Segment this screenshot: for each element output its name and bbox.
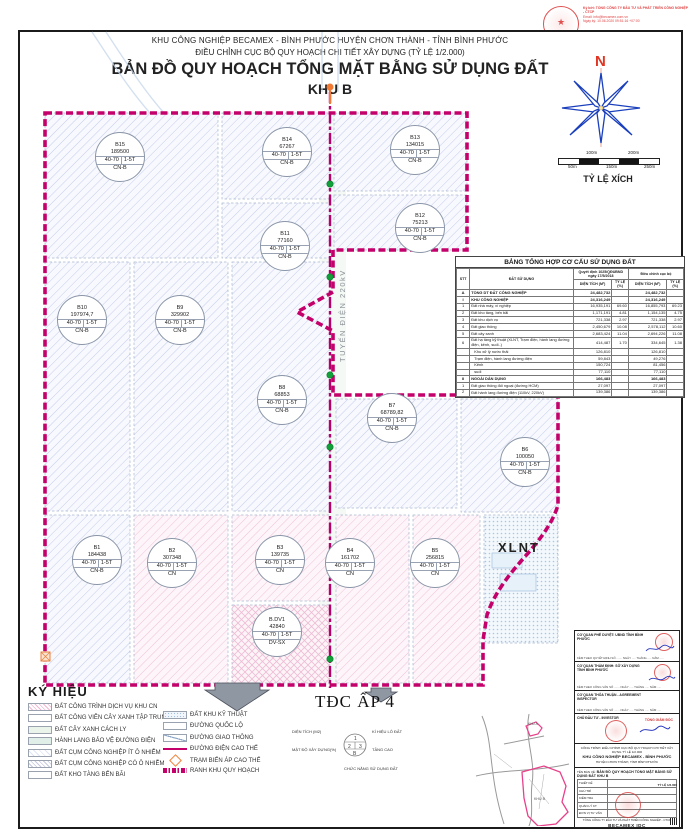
scale-tick: 50m — [568, 164, 577, 169]
substation-pin-icon — [327, 84, 334, 105]
legend-label: ĐƯỜNG GIAO THÔNG — [190, 735, 254, 741]
parcel-area: 68789,82 — [368, 410, 416, 418]
parcel-label: B10 197974,7 40-701-5T CN-B — [57, 295, 107, 345]
legend-label: ĐẤT KHU KỸ THUẬT — [190, 712, 247, 718]
legend-swatch — [163, 745, 187, 753]
parcel-id: B12 — [396, 213, 444, 220]
legend-swatch — [28, 771, 52, 779]
parcel-id: B14 — [263, 137, 311, 144]
legend-item: ĐƯỜNG GIAO THÔNG — [163, 734, 293, 742]
parcel-use: CN-B — [58, 328, 106, 335]
legend-label: ĐẤT CÔNG VIÊN CÂY XANH TẬP TRUNG — [55, 715, 170, 721]
table-row: 2 Đất hành lang đường điện (110kV, 220kV… — [457, 389, 684, 396]
legend-item: ĐẤT CÂY XANH CÁCH LY — [28, 726, 163, 734]
signature-icon — [648, 674, 676, 684]
parcel-use: CN-B — [73, 568, 121, 575]
legend-swatch — [163, 757, 187, 765]
parcel-id: B3 — [256, 545, 304, 552]
investor-section: CHỦ ĐẦU TƯ - INVESTOR TỔNG GIÁM ĐỐC — [575, 714, 679, 744]
key-density-label: MẬT ĐỘ XÂY DỰNG(%) — [292, 747, 336, 752]
parcel-id: B5 — [411, 548, 459, 555]
legend-swatch — [28, 703, 52, 711]
parcel-area: 67267 — [263, 144, 311, 152]
locator-zone-b — [522, 766, 568, 826]
locator-zone-b-label: KHU B — [534, 797, 546, 801]
parcel-density-floors: 40-701-5T — [501, 462, 549, 470]
scale-tick: 100m — [586, 150, 597, 155]
legend-label: TRẠM BIẾN ÁP CAO THẾ — [190, 758, 260, 764]
parcel-use: CN-B — [96, 165, 144, 172]
table-row: Trạm điện, hành lang đường điện 59,843 4… — [457, 356, 684, 363]
parcel-label: B14 67267 40-701-5T CN-B — [262, 127, 312, 177]
legend-label: ĐẤT CÔNG TRÌNH DỊCH VỤ KHU CN — [55, 704, 157, 710]
parcel-density-floors: 40-701-5T — [156, 320, 204, 328]
parcel-area: 75213 — [396, 220, 444, 228]
parcel-density: 40-70 — [375, 418, 393, 425]
parcel-density: 40-70 — [103, 157, 121, 164]
parcel-density-floors: 40-701-5T — [411, 563, 459, 571]
parcel-id: B9 — [156, 305, 204, 312]
legend-label: HÀNH LANG BẢO VỆ ĐƯỜNG ĐIỆN — [55, 738, 155, 744]
table-header: STT ĐẤT SỬ DỤNG Quyết định 1025/QĐUBND n… — [457, 269, 684, 290]
parcel-density: 40-70 — [265, 400, 283, 407]
parcel-density-floors: 40-701-5T — [368, 418, 416, 426]
legend-right-column: ĐẤT KHU KỸ THUẬT ĐƯỜNG QUỐC LỘ ĐƯỜNG GIA… — [163, 711, 293, 777]
power-line-label: TUYẾN ĐIỆN 220kV — [337, 269, 347, 362]
parcel-label: B11 77160 40-701-5T CN-B — [260, 221, 310, 271]
north-label: N — [595, 53, 606, 70]
table-title: BẢNG TỔNG HỢP CƠ CẤU SỬ DỤNG ĐẤT — [456, 257, 684, 268]
parcel-id: B15 — [96, 142, 144, 149]
legend-item: TRẠM BIẾN ÁP CAO THẾ — [163, 757, 293, 765]
locator-zone-a-label: KHU A — [528, 722, 538, 726]
parcel-area: 42840 — [253, 624, 301, 632]
parcel-density-floors: 40-701-5T — [391, 150, 439, 158]
parcel-density: 40-70 — [333, 563, 351, 570]
legend-label: ĐƯỜNG QUỐC LỘ — [190, 723, 243, 729]
legend-item: ĐẤT KHO TÀNG BẾN BÃI — [28, 771, 163, 779]
legend-item: ĐƯỜNG ĐIỆN CAO THẾ — [163, 745, 293, 753]
parcel-area: 307348 — [148, 555, 196, 563]
locator-minimap: KHU A KHU B — [474, 714, 574, 826]
drawing-scale: TỶ LỆ 1/2.000 — [658, 783, 677, 787]
parcel-label: B1 184438 40-701-5T CN-B — [72, 535, 122, 585]
scale-bar: 100m 200m 50m 150m 250m TỶ LỆ XÍCH — [556, 150, 666, 194]
approval-section: CƠ QUAN PHÊ DUYỆT: UBND TỈNH BÌNH PHƯỚC … — [575, 631, 679, 662]
parcel-label: B15 189500 40-701-5T CN-B — [95, 132, 145, 182]
legend-item: ĐƯỜNG QUỐC LỘ — [163, 722, 293, 730]
table-row: 2 Đất kho tàng, bến bãi 1,171,191 4.81 1… — [457, 310, 684, 317]
barcode-icon — [670, 818, 677, 825]
legend-item: ĐẤT CÔNG TRÌNH DỊCH VỤ KHU CN — [28, 703, 163, 711]
parcel-density: 40-70 — [270, 152, 288, 159]
parcel-area: 161702 — [326, 555, 374, 563]
parcel-use: CN-B — [156, 328, 204, 335]
parcel-density: 40-70 — [65, 320, 83, 327]
parcel-density-floors: 40-701-5T — [263, 152, 311, 160]
parcel-area: 139735 — [256, 552, 304, 560]
parcel-label: B7 68789,82 40-701-5T CN-B — [367, 393, 417, 443]
parcel-area: 184438 — [73, 552, 121, 560]
legend-swatch — [28, 714, 52, 722]
land-use-table: BẢNG TỔNG HỢP CƠ CẤU SỬ DỤNG ĐẤT STT ĐẤT… — [455, 256, 685, 398]
parcel-floors: 1-5T — [421, 228, 437, 235]
parcel-floors: 1-5T — [83, 320, 99, 327]
parcel-id: B4 — [326, 548, 374, 555]
plan-sheet: Ký bởi: TỔNG CÔNG TY ĐẦU TƯ VÀ PHÁT TRIỂ… — [0, 0, 700, 840]
legend-item: ĐẤT CỤM CÔNG NGHIỆP CÓ Ô NHIỄM — [28, 760, 163, 768]
parcel-area: 68853 — [258, 392, 306, 400]
title-block: CƠ QUAN PHÊ DUYỆT: UBND TỈNH BÌNH PHƯỚC … — [574, 630, 680, 828]
legend-title: KÝ HIỆU — [28, 684, 88, 699]
parcel-use: CN-B — [501, 470, 549, 477]
parcel-floors: 1-5T — [416, 150, 432, 157]
xlnt-zone-label: XLNT — [498, 540, 540, 555]
parcel-label: B13 134015 40-701-5T CN-B — [390, 125, 440, 175]
table-row: 6 Đất hạ tầng kỹ thuật (XLNT, Trạm điện,… — [457, 337, 684, 348]
parcel-id: B.DV1 — [253, 617, 301, 624]
legend-swatch — [163, 768, 187, 773]
parcel-density: 40-70 — [163, 320, 181, 327]
parcel-floors: 1-5T — [286, 246, 302, 253]
parcel-use: CN-B — [263, 160, 311, 167]
parcel-label: B12 75213 40-701-5T CN-B — [395, 203, 445, 253]
parcel-id: B13 — [391, 135, 439, 142]
legend-label: ĐẤT CÂY XANH CÁCH LY — [55, 727, 126, 733]
svg-text:1: 1 — [354, 736, 357, 742]
parcel-floors: 1-5T — [278, 632, 294, 639]
parcel-use: CN-B — [261, 254, 309, 261]
parcel-density-floors: 40-701-5T — [258, 400, 306, 408]
parcel-id: B8 — [258, 385, 306, 392]
legend-label: ĐƯỜNG ĐIỆN CAO THẾ — [190, 746, 258, 752]
parcel-density-floors: 40-701-5T — [96, 157, 144, 165]
parcel-density: 40-70 — [418, 563, 436, 570]
table-body: A TỔNG DT ĐẤT CÔNG NGHIỆP 24,482,732 24,… — [457, 290, 684, 397]
legend-swatch — [163, 722, 187, 730]
parcel-floors: 1-5T — [283, 400, 299, 407]
parcel-density-floors: 40-701-5T — [148, 563, 196, 571]
table-row: Khu xử lý nước thải 126,810 126,810 — [457, 349, 684, 356]
consultant-short-name: BECAMEX IDC — [577, 823, 677, 828]
svg-text:3: 3 — [359, 744, 362, 750]
legend-swatch — [28, 726, 52, 734]
legend-item: ĐẤT KHU KỸ THUẬT — [163, 711, 293, 719]
parcel-area: 134015 — [391, 142, 439, 150]
parcel-floors: 1-5T — [98, 560, 114, 567]
parcel-density: 40-70 — [80, 560, 98, 567]
parcel-density-floors: 40-701-5T — [253, 632, 301, 640]
parcel-label: B5 256815 40-701-5T CN — [410, 538, 460, 588]
parcel-id: B7 — [368, 403, 416, 410]
signature-icon — [645, 644, 675, 654]
legend-item: ĐẤT CÔNG VIÊN CÂY XANH TẬP TRUNG — [28, 714, 163, 722]
consultant-stamp-icon — [615, 792, 641, 818]
scale-tick: 150m — [606, 164, 617, 169]
legend-swatch — [28, 737, 52, 745]
scale-bar-title: TỶ LỆ XÍCH — [556, 174, 660, 184]
svg-text:2: 2 — [348, 744, 351, 750]
parcel-floors: 1-5T — [121, 157, 137, 164]
parcel-label: B8 68853 40-701-5T CN-B — [257, 375, 307, 425]
parcel-label: B4 161702 40-701-5T CN — [325, 538, 375, 588]
parcel-density: 40-70 — [403, 228, 421, 235]
entry-roads — [92, 32, 338, 113]
parcel-use: CN — [148, 571, 196, 578]
parcel-id: B2 — [148, 548, 196, 555]
key-circle-icon: 1 2 3 B — [342, 732, 368, 760]
parcel-density: 40-70 — [263, 560, 281, 567]
parcel-density-floors: 40-701-5T — [73, 560, 121, 568]
legend-item: HÀNH LANG BẢO VỆ ĐƯỜNG ĐIỆN — [28, 737, 163, 745]
scale-tick: 250m — [644, 164, 655, 169]
parcel-area: 256815 — [411, 555, 459, 563]
parcel-density: 40-70 — [398, 150, 416, 157]
parcel-use: CN — [326, 571, 374, 578]
legend-label: ĐẤT KHO TÀNG BẾN BÃI — [55, 772, 125, 778]
parcel-id: B1 — [73, 545, 121, 552]
parcel-density: 40-70 — [155, 563, 173, 570]
appraisal-section: CƠ QUAN THẨM ĐỊNH: SỞ XÂY DỰNG TỈNH BÌNH… — [575, 662, 679, 691]
parcel-floors: 1-5T — [288, 152, 304, 159]
parcel-density-floors: 40-701-5T — [261, 246, 309, 254]
parcel-floors: 1-5T — [351, 563, 367, 570]
parcel-use: CN-B — [258, 408, 306, 415]
legend-label: ĐẤT CỤM CÔNG NGHIỆP ÍT Ô NHIỄM — [55, 750, 161, 756]
parcel-density: 40-70 — [260, 632, 278, 639]
key-function-label: CHỨC NĂNG SỬ DỤNG ĐẤT — [344, 766, 398, 771]
parcel-label: B3 139735 40-701-5T CN — [255, 535, 305, 585]
parcel-area: 100050 — [501, 454, 549, 462]
parcel-floors: 1-5T — [526, 462, 542, 469]
parcel-density-floors: 40-701-5T — [58, 320, 106, 328]
table-row: suối 77,110 77,110 — [457, 369, 684, 376]
parcel-area: 197974,7 — [58, 312, 106, 320]
legend-left-column: ĐẤT CÔNG TRÌNH DỊCH VỤ KHU CN ĐẤT CÔNG V… — [28, 703, 163, 783]
parcel-density: 40-70 — [508, 462, 526, 469]
parcel-density-floors: 40-701-5T — [256, 560, 304, 568]
table-row: II NGOÀI DÂN DỤNG 166,483 166,483 — [457, 376, 684, 383]
investor-stamp-icon — [605, 720, 627, 742]
signature-icon — [639, 724, 671, 736]
parcel-floors: 1-5T — [393, 418, 409, 425]
key-floors-label: TẦNG CAO — [372, 747, 393, 752]
drawing-section: TÊN BẢN VẼ: BẢN ĐỒ QUY HOẠCH TỔNG MẶT BẰ… — [575, 768, 679, 826]
table-row: 1 Đất giao thông đối ngoại (đường HCM) 2… — [457, 383, 684, 390]
table-row: I KHU CÔNG NGHIỆP 24,316,249 24,316,249 — [457, 297, 684, 304]
table-row: Kênh 150,724 81,456 — [457, 362, 684, 369]
legend-swatch — [163, 734, 187, 742]
tdc-ap4-label: TĐC ẤP 4 — [290, 692, 420, 712]
compass-rose: N — [556, 50, 646, 152]
legend-swatch — [28, 760, 52, 768]
scale-tick: 200m — [628, 150, 639, 155]
legend-swatch — [163, 711, 187, 719]
table-row: 1 Đất nhà máy, xí nghiệp 16,935,191 69.6… — [457, 303, 684, 310]
parcel-use: CN — [411, 571, 459, 578]
parcel-id: B6 — [501, 447, 549, 454]
parcel-density-floors: 40-701-5T — [326, 563, 374, 571]
project-section: CÔNG TRÌNH: ĐIỀU CHỈNH CỤC BỘ QUY HOẠCH … — [575, 744, 679, 768]
legend-label: ĐẤT CỤM CÔNG NGHIỆP CÓ Ô NHIỄM — [55, 761, 164, 767]
parcel-label: B.DV1 42840 40-701-5T DV-SX — [252, 607, 302, 657]
key-area-label: DIỆN TÍCH (M2) — [292, 729, 321, 734]
table-row: 3 Đất khu dịch vụ 721,338 2.97 721,338 2… — [457, 317, 684, 324]
agreement-section: CƠ QUAN THỎA THUẬN - AGREEMENT INSPECTOR… — [575, 691, 679, 714]
parcel-label: B9 329902 40-701-5T CN-B — [155, 295, 205, 345]
parcel-floors: 1-5T — [281, 560, 297, 567]
legend-item: RANH KHU QUY HOẠCH — [163, 768, 293, 774]
parcel-floors: 1-5T — [173, 563, 189, 570]
parcel-use: CN-B — [368, 426, 416, 433]
table-row: 5 Đất cây xanh 2,683,424 11.04 2,694,226… — [457, 331, 684, 338]
parcel-area: 189500 — [96, 149, 144, 157]
table-row: 4 Đất giao thông 2,450,679 10.08 2,578,1… — [457, 324, 684, 331]
substation-square-icon — [41, 652, 50, 661]
key-symbol-label: KÍ HIỆU LÔ ĐẤT — [372, 729, 402, 734]
legend-label: RANH KHU QUY HOẠCH — [190, 768, 259, 774]
parcel-use: DV-SX — [253, 640, 301, 647]
parcel-use: CN — [256, 568, 304, 575]
parcel-use: CN-B — [396, 236, 444, 243]
parcel-use: CN-B — [391, 158, 439, 165]
parcel-floors: 1-5T — [436, 563, 452, 570]
parcel-density: 40-70 — [268, 246, 286, 253]
parcel-floors: 1-5T — [181, 320, 197, 327]
parcel-id: B11 — [261, 231, 309, 238]
parcel-label: B6 100050 40-701-5T CN-B — [500, 437, 550, 487]
parcel-label: B2 307348 40-701-5T CN — [147, 538, 197, 588]
parcel-key-diagram: DIỆN TÍCH (M2) KÍ HIỆU LÔ ĐẤT MẬT ĐỘ XÂY… — [292, 726, 432, 776]
table-row: A TỔNG DT ĐẤT CÔNG NGHIỆP 24,482,732 24,… — [457, 290, 684, 297]
parcel-id: B10 — [58, 305, 106, 312]
parcel-area: 329902 — [156, 312, 204, 320]
parcel-area: 77160 — [261, 238, 309, 246]
legend-item: ĐẤT CỤM CÔNG NGHIỆP ÍT Ô NHIỄM — [28, 749, 163, 757]
parcel-density-floors: 40-701-5T — [396, 228, 444, 236]
legend-swatch — [28, 749, 52, 757]
